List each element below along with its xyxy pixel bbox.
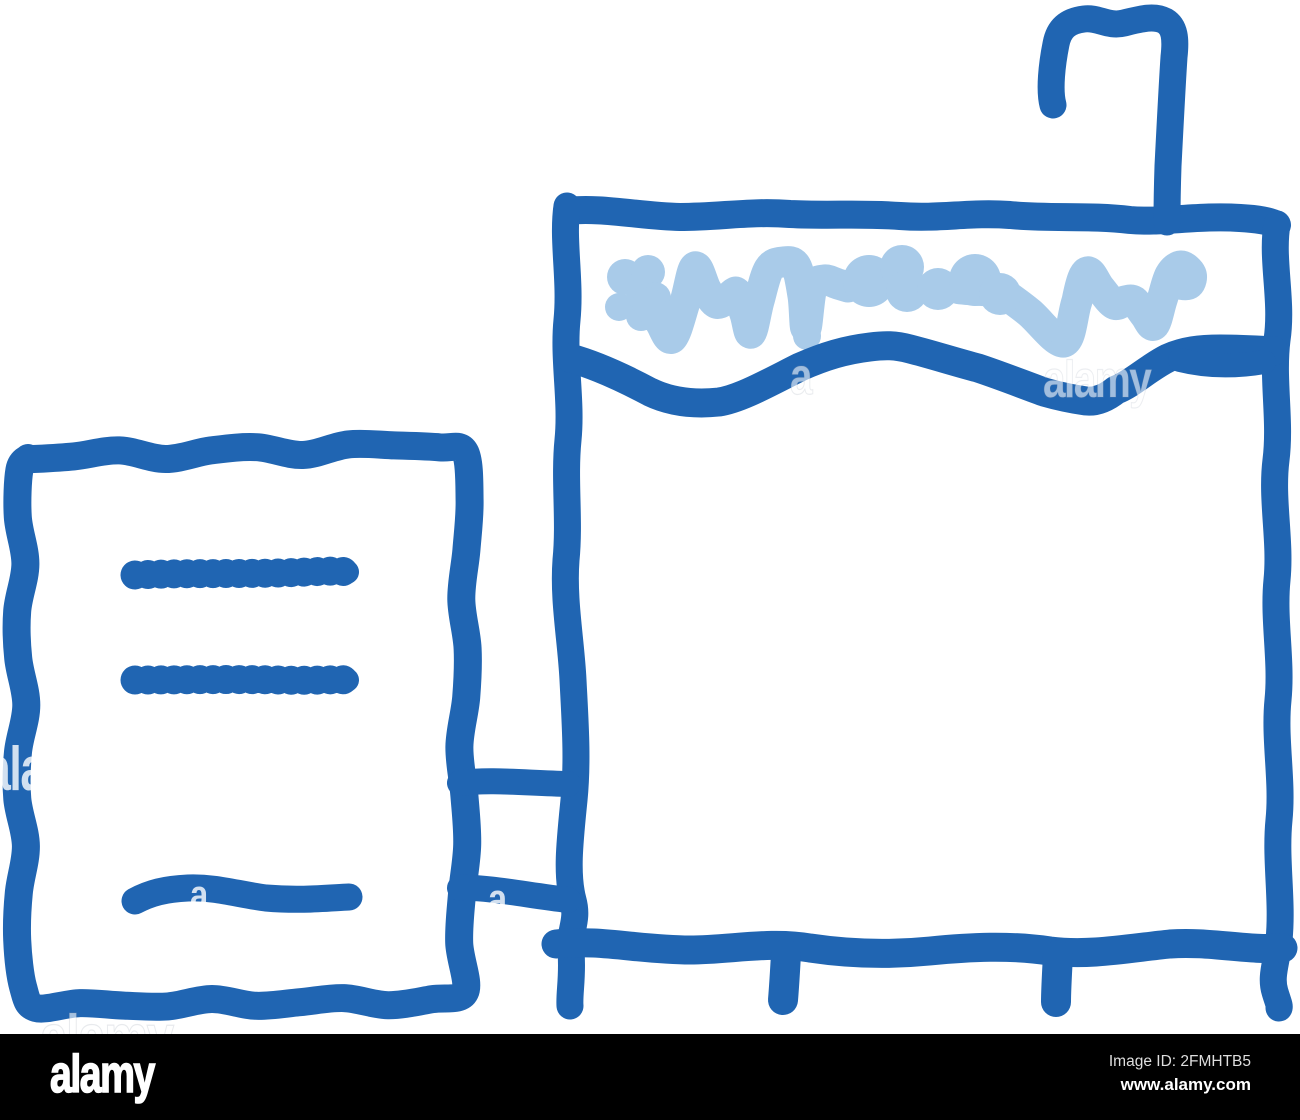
svg-text:a: a — [190, 872, 209, 917]
svg-text:alamy: alamy — [50, 1044, 155, 1103]
svg-text:a: a — [790, 347, 813, 405]
svg-text:www.alamy.com: www.alamy.com — [1120, 1075, 1251, 1094]
svg-text:alamy: alamy — [1043, 350, 1152, 408]
svg-text:alamy: alamy — [0, 735, 107, 804]
svg-text:a: a — [488, 876, 508, 923]
svg-text:Image ID: 2FMHTB5: Image ID: 2FMHTB5 — [1109, 1053, 1251, 1070]
